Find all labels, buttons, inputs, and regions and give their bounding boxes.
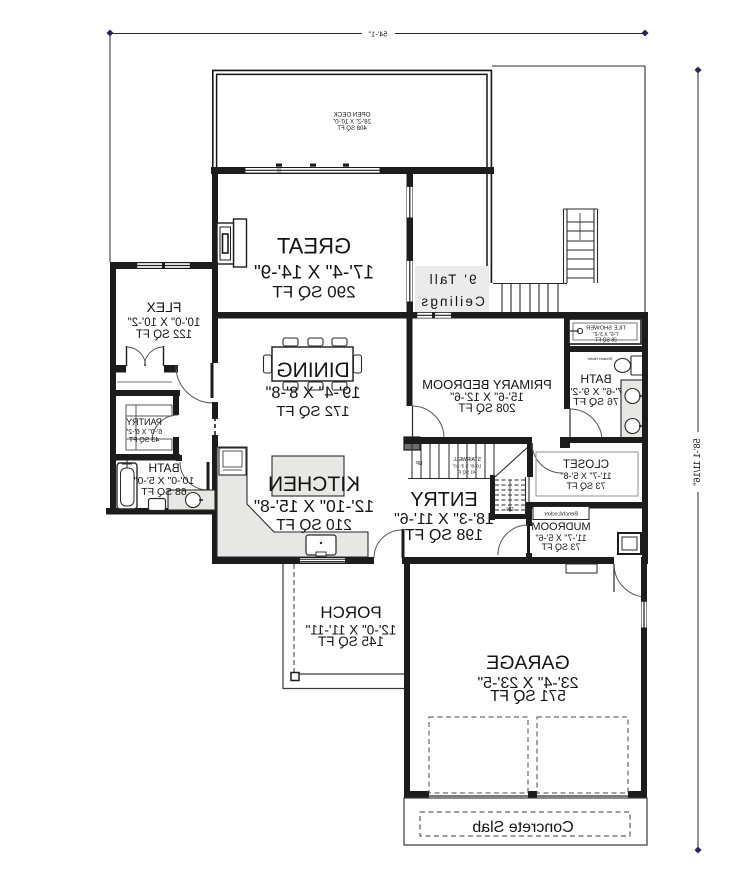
- svg-text:Shower Niche: Shower Niche: [587, 356, 613, 361]
- svg-text:GREAT: GREAT: [277, 234, 351, 259]
- svg-text:19'-4" X 8'-8": 19'-4" X 8'-8": [265, 384, 360, 402]
- svg-text:9' Tall: 9' Tall: [427, 272, 476, 287]
- svg-text:12'-10" X 15'-8": 12'-10" X 15'-8": [254, 496, 374, 516]
- svg-text:290 SQ FT: 290 SQ FT: [272, 283, 355, 302]
- svg-text:122 SQ FT: 122 SQ FT: [136, 329, 192, 341]
- svg-text:Concrete Slab: Concrete Slab: [472, 819, 573, 836]
- svg-text:CLOSET: CLOSET: [563, 459, 609, 471]
- svg-text:BATH: BATH: [580, 372, 611, 386]
- svg-text:Ceilings: Ceilings: [419, 294, 485, 309]
- svg-text:DN: DN: [506, 507, 514, 513]
- svg-text:145 SQ FT: 145 SQ FT: [318, 634, 384, 649]
- svg-text:GARAGE: GARAGE: [486, 652, 569, 674]
- svg-text:17'-4" X 14'-9": 17'-4" X 14'-9": [254, 263, 374, 284]
- svg-text:28 SQ FT: 28 SQ FT: [595, 337, 617, 343]
- svg-text:571 SQ FT: 571 SQ FT: [490, 688, 566, 705]
- svg-text:76 SQ FT: 76 SQ FT: [573, 396, 619, 408]
- svg-text:KITCHEN: KITCHEN: [268, 473, 360, 496]
- svg-text:PANTRY: PANTRY: [126, 417, 162, 427]
- svg-text:UP: UP: [415, 461, 423, 467]
- svg-text:6'-0" X 6'-2": 6'-0" X 6'-2": [125, 429, 162, 436]
- svg-text:172 SQ FT: 172 SQ FT: [276, 403, 349, 420]
- svg-text:28'-2" X 10'-0": 28'-2" X 10'-0": [333, 120, 371, 126]
- svg-text:73 SQ FT: 73 SQ FT: [541, 542, 581, 552]
- svg-text:68 SQ FT: 68 SQ FT: [141, 486, 187, 498]
- svg-text:210 SQ FT: 210 SQ FT: [276, 517, 352, 534]
- svg-text:41 SQ F: 41 SQ F: [458, 470, 475, 475]
- svg-text:TILE SHOWER: TILE SHOWER: [586, 326, 626, 332]
- svg-text:58'-1 11/16": 58'-1 11/16": [692, 438, 702, 485]
- svg-text:11'-7" X 5'-8": 11'-7" X 5'-8": [560, 471, 611, 481]
- svg-text:73 SQ FT: 73 SQ FT: [566, 481, 606, 491]
- svg-text:DINING: DINING: [276, 359, 350, 382]
- svg-text:54'-1": 54'-1": [368, 30, 387, 39]
- svg-text:43 SQ FT: 43 SQ FT: [128, 437, 159, 444]
- svg-text:198 SQ FT: 198 SQ FT: [405, 527, 483, 544]
- svg-text:PRIMARY BEDROOM: PRIMARY BEDROOM: [422, 377, 552, 392]
- svg-text:FLEX: FLEX: [146, 299, 182, 315]
- svg-text:Bench/Locker: Bench/Locker: [544, 512, 578, 518]
- svg-text:OPEN DECK: OPEN DECK: [333, 112, 371, 119]
- svg-text:408 SQ FT: 408 SQ FT: [337, 126, 367, 132]
- svg-text:10'-8" X 3'-10": 10'-8" X 3'-10": [452, 464, 481, 469]
- svg-text:10'-0" X 10'-2": 10'-0" X 10'-2": [128, 317, 201, 329]
- svg-text:18'-3" X 11'-6": 18'-3" X 11'-6": [394, 511, 494, 528]
- svg-text:MUDROOM: MUDROOM: [531, 521, 590, 533]
- svg-text:ENTRY: ENTRY: [410, 489, 477, 511]
- svg-text:BATH: BATH: [148, 461, 179, 475]
- svg-text:208 SQ FT: 208 SQ FT: [458, 402, 515, 415]
- svg-text:PORCH: PORCH: [320, 603, 381, 622]
- svg-text:STAIRWELL: STAIRWELL: [453, 457, 481, 463]
